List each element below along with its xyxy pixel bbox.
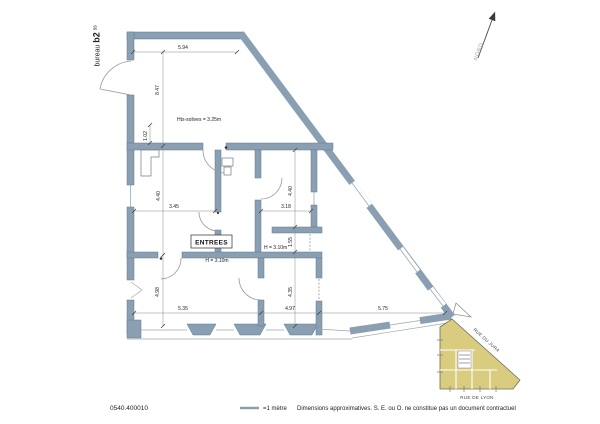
ceiling-note: Hts-solives = 3.25m [177, 117, 221, 123]
dim-room-a-height: 4.40 [156, 191, 162, 201]
dim-room-b-height: 4.40 [288, 186, 294, 196]
chimney-outline [141, 150, 159, 176]
north-label: NORD [473, 42, 485, 62]
scale-label: =1 mètre [263, 406, 288, 412]
north-arrow-icon: NORD [473, 12, 495, 62]
footer: 0540.400010 =1 mètre Dimensions approxim… [110, 405, 516, 412]
dim-room-a-width: 3.45 [169, 204, 179, 210]
street-label-lyon: RUE DE LYON [460, 395, 493, 400]
dim-pier: 1.02 [143, 131, 149, 141]
floor-plan-svg: 5.94 8.47 1.02 Hts-solives = 3.25m 4.40 … [0, 0, 600, 424]
dim-room-b-sub: 1.55 [288, 237, 294, 247]
dim-room-d-width: 4.97 [285, 306, 295, 312]
dim-top-room-width: 5.94 [178, 45, 188, 51]
dim-top-room-height: 8.47 [155, 85, 161, 95]
disclaimer: Dimensions approximatives. S. E. ou O. n… [297, 406, 516, 412]
dim-room-e-width: 5.75 [378, 306, 388, 312]
site-map-building [440, 319, 520, 389]
height-note-1: H = 3.10m [264, 245, 287, 251]
height-note-2: H = 3.10m [205, 258, 228, 264]
dim-room-b-width: 3.18 [281, 204, 291, 210]
dim-room-d-height: 4.35 [288, 287, 294, 297]
entry-label: ENTREES [195, 240, 228, 247]
floor-plan-page: bureau b2 ss [0, 0, 600, 424]
dim-room-c-height: 4.98 [155, 287, 161, 297]
site-map-tip [453, 303, 471, 317]
site-map-stairs [458, 351, 471, 368]
dim-room-c-width: 5.35 [178, 306, 188, 312]
entry-label-group: ENTREES [191, 235, 232, 248]
reference-number: 0540.400010 [110, 405, 148, 412]
